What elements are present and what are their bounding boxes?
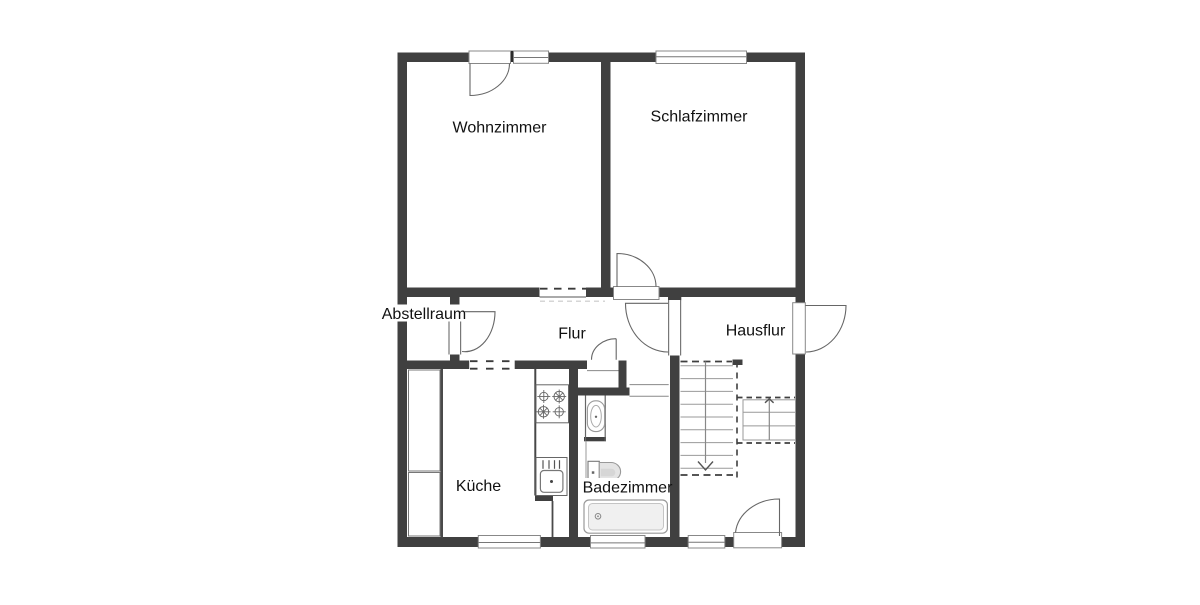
svg-text:Hausflur: Hausflur <box>726 323 786 340</box>
svg-text:Wohnzimmer: Wohnzimmer <box>453 120 548 137</box>
svg-text:Abstellraum: Abstellraum <box>382 306 466 323</box>
svg-text:Badezimmer: Badezimmer <box>583 480 673 497</box>
svg-text:Küche: Küche <box>456 478 501 495</box>
svg-text:Flur: Flur <box>558 325 586 342</box>
svg-text:Schlafzimmer: Schlafzimmer <box>651 108 749 125</box>
